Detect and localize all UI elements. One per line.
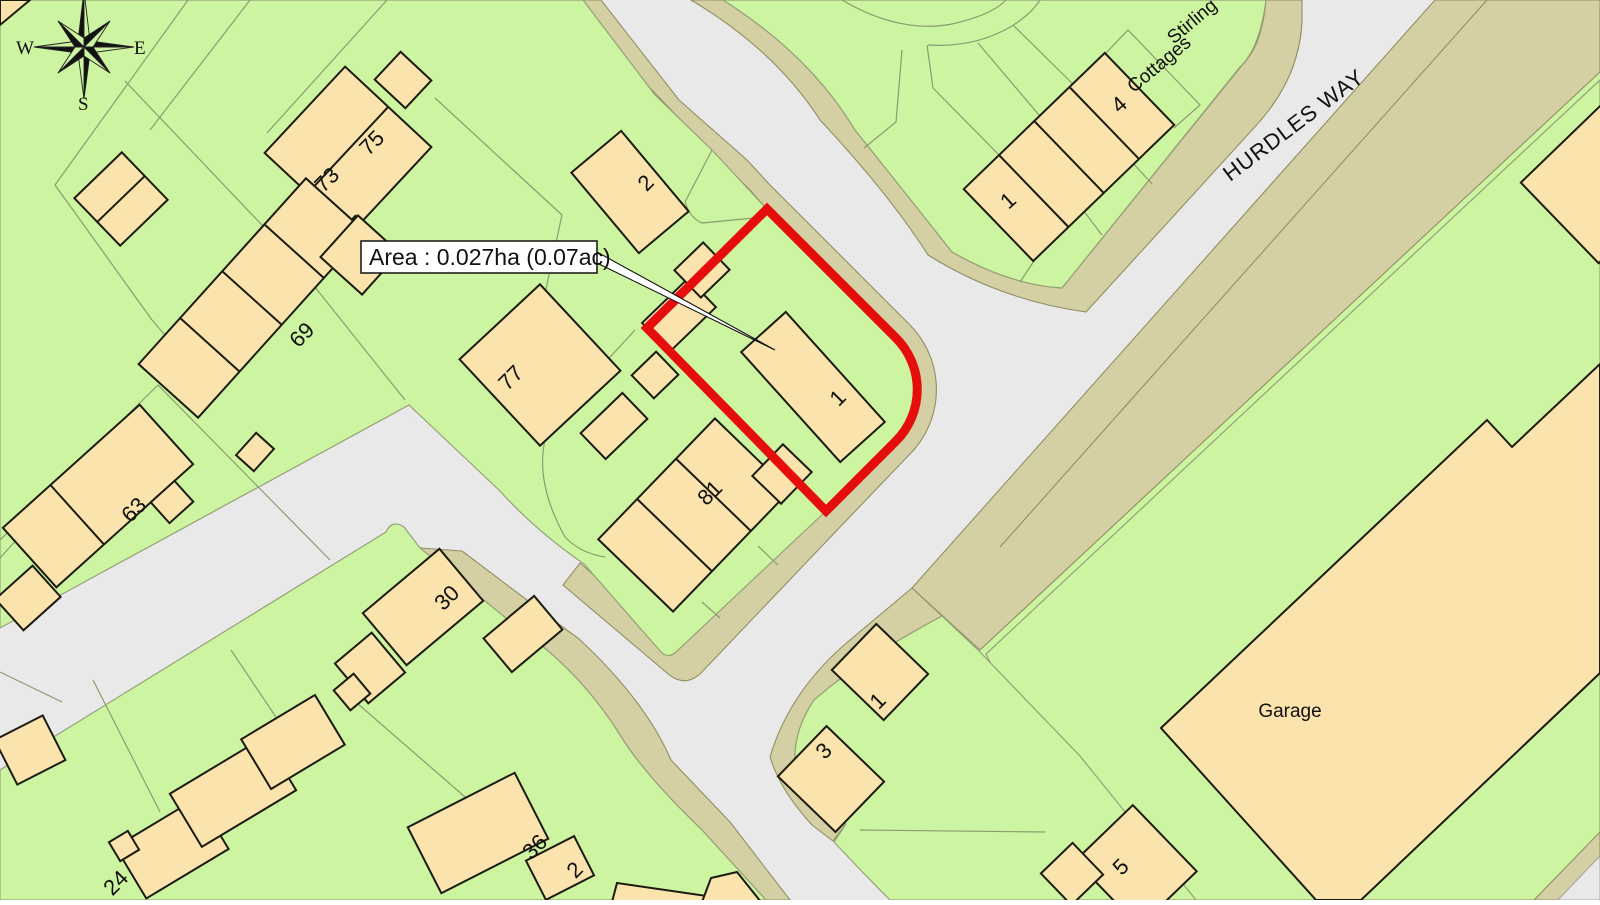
svg-text:Area : 0.027ha (0.07ac): Area : 0.027ha (0.07ac) (369, 244, 611, 270)
svg-text:W: W (16, 38, 34, 59)
svg-text:S: S (78, 94, 89, 115)
svg-text:Garage: Garage (1258, 701, 1321, 722)
svg-text:E: E (134, 38, 146, 59)
